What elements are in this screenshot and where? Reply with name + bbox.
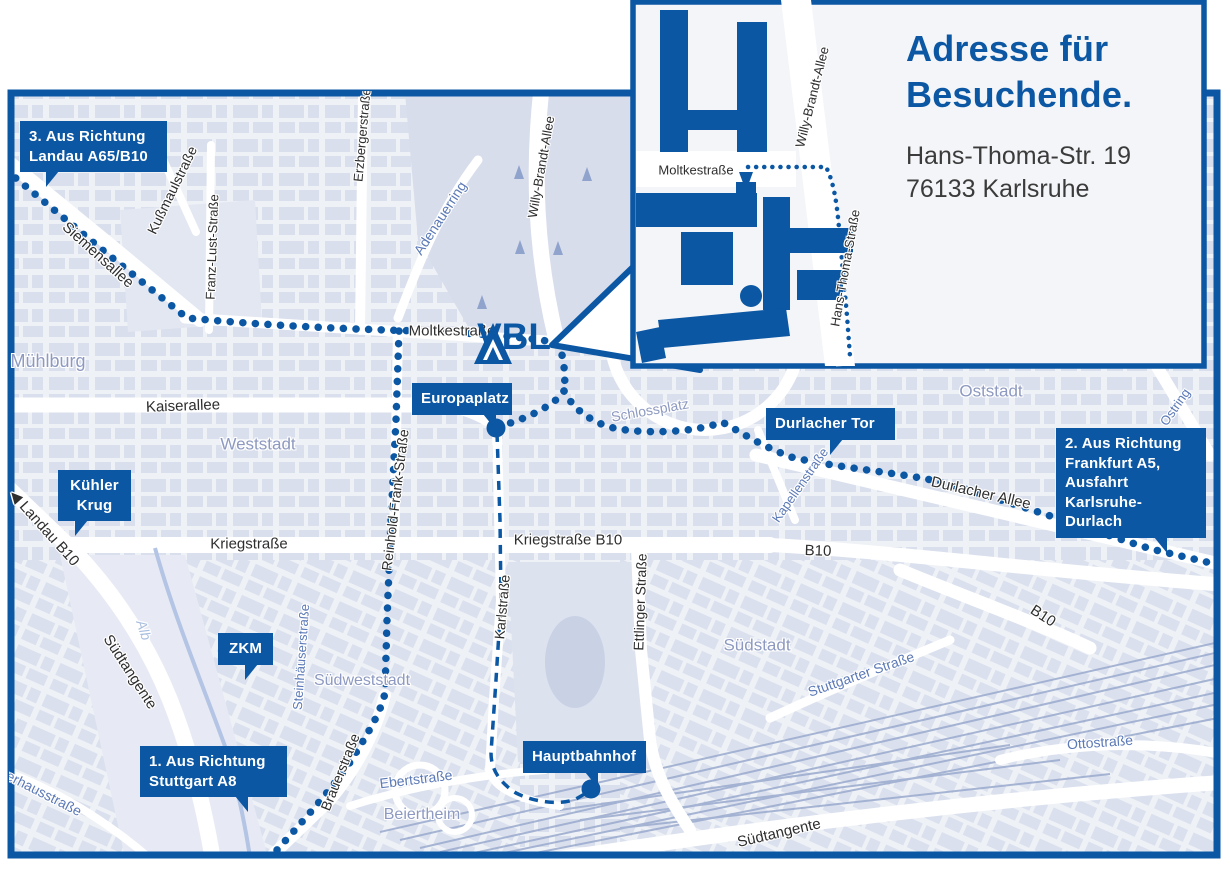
- inset-title: Adresse für Besuchende.: [906, 26, 1132, 118]
- street-label: Willy-Brandt-Allee: [793, 45, 831, 148]
- inset-title-line2: Besuchende.: [906, 72, 1132, 118]
- street-label: Moltkestraße: [658, 164, 733, 177]
- inset-title-line1: Adresse für: [906, 26, 1132, 72]
- inset-address-line1: Hans-Thoma-Str. 19: [906, 140, 1131, 173]
- inset-address-line2: 76133 Karlsruhe: [906, 173, 1131, 206]
- inset-address: Hans-Thoma-Str. 19 76133 Karlsruhe: [906, 140, 1131, 205]
- street-label: Hans-Thoma-Straße: [828, 209, 861, 328]
- inset-labels-layer: Adresse für Besuchende. Hans-Thoma-Str. …: [0, 0, 1230, 874]
- karlsruhe-map: SiemensalleeKußmaulstraßeFranz-Lust-Stra…: [0, 0, 1230, 874]
